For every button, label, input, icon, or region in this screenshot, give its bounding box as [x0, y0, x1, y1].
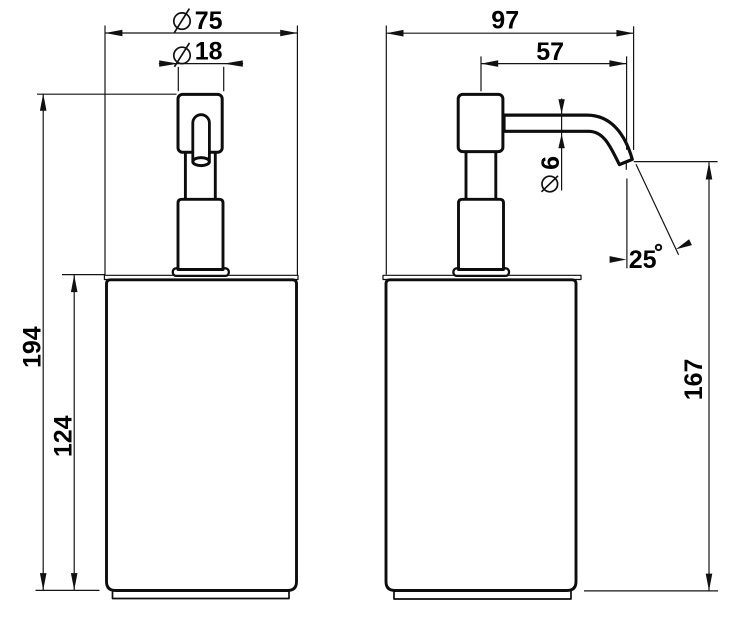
svg-text:6: 6	[537, 156, 565, 170]
svg-text:57: 57	[536, 38, 564, 66]
svg-text:167: 167	[680, 359, 708, 401]
svg-text:194: 194	[18, 326, 46, 368]
svg-text:97: 97	[491, 7, 519, 35]
svg-text:25: 25	[629, 246, 657, 274]
svg-text:75: 75	[195, 7, 223, 35]
svg-text:18: 18	[195, 38, 223, 66]
svg-text:124: 124	[50, 415, 78, 457]
